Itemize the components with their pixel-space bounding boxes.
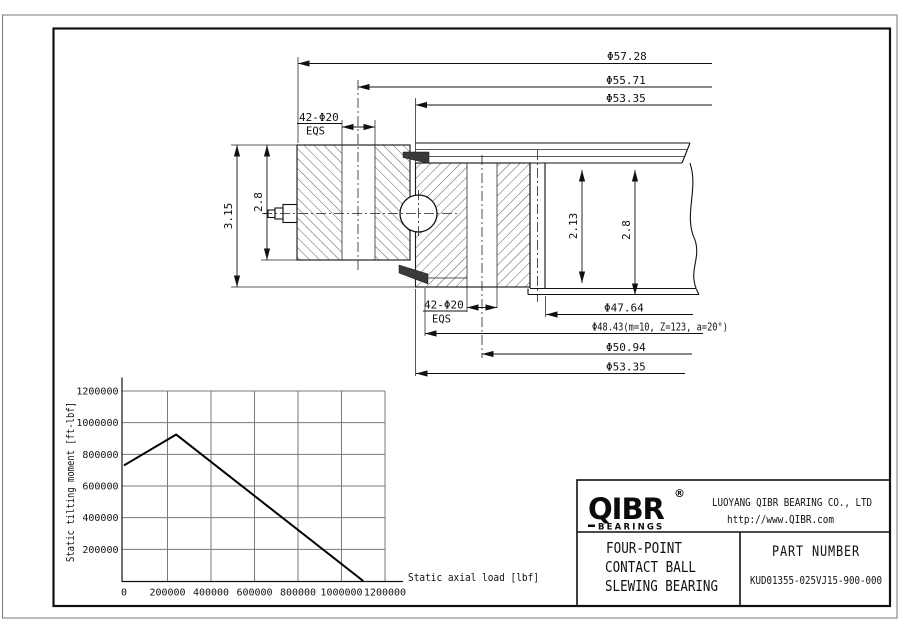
y-tick-label: 600000 [82,482,118,493]
dim-outer-ring-height: 2.8 [252,192,265,212]
engineering-drawing: Φ57.28 Φ55.71 Φ53.35 42-Φ20 EQS 3.15 2.8… [0,0,900,636]
dim-inner-ring-height: 2.8 [620,220,633,240]
dim-inner-bolt-circle: Φ50.94 [606,341,646,354]
y-axis-label: Static tilting moment [ft-lbf] [64,402,77,562]
registered-mark-icon: ® [674,487,685,500]
dim-inner-holes: 42-Φ20 [424,299,464,312]
chart-data-line [124,435,363,581]
company-website: http://www.QIBR.com [727,514,834,526]
x-tick-label: 1200000 [364,588,406,599]
product-type-line3: SLEWING BEARING [605,577,718,595]
x-tick-label: 0 [121,588,127,599]
dim-total-height: 3.15 [222,203,235,230]
y-tick-label: 200000 [82,545,118,556]
dim-outer-diameter: Φ57.28 [607,50,647,63]
x-axis-label: Static axial load [lbf] [408,571,539,584]
break-line-wavy [690,163,697,288]
chart-gridlines [122,391,385,582]
x-tick-label: 400000 [193,588,229,599]
dim-bore-diameter: Φ47.64 [604,302,644,315]
y-tick-label: 1000000 [76,418,118,429]
dim-outer-holes: 42-Φ20 [299,111,339,124]
product-type-line1: FOUR-POINT [606,539,682,557]
inner-ring-section [497,163,530,287]
dim-bottom-gap-diameter: Φ53.35 [606,361,646,374]
logo-rule [588,525,595,528]
x-tick-label: 200000 [149,588,185,599]
logo-subtext: BEARINGS [598,523,664,533]
part-number-value: KUD01355-025VJ15-900-000 [750,574,882,587]
load-chart: 2000004000006000008000001000000120000002… [64,378,539,599]
chart-tick-labels: 2000004000006000008000001000000120000002… [76,387,406,599]
dim-outer-bolt-circle: Φ55.71 [606,74,646,87]
y-tick-label: 1200000 [76,387,118,398]
x-tick-label: 600000 [236,588,272,599]
x-tick-label: 800000 [280,588,316,599]
x-tick-label: 1000000 [320,588,362,599]
part-number-label: PART NUMBER [772,544,860,560]
company-name: LUOYANG QIBR BEARING CO., LTD [712,497,872,509]
product-type-line2: CONTACT BALL [605,558,696,576]
logo-text: QIBR [588,492,665,526]
title-block: QIBR ® BEARINGS LUOYANG QIBR BEARING CO.… [577,480,890,606]
dim-outer-holes-note: EQS [306,126,325,138]
drawing-sheet: Φ57.28 Φ55.71 Φ53.35 42-Φ20 EQS 3.15 2.8… [0,0,900,636]
y-tick-label: 400000 [82,513,118,524]
company-logo: QIBR ® BEARINGS [588,487,685,533]
dim-gear-pitch: Φ48.43(m=10, Z=123, a=20°) [592,321,728,334]
outer-ring-section [297,145,342,260]
dim-pilot-height: 2.13 [567,213,580,240]
y-tick-label: 800000 [82,450,118,461]
dim-top-gap-diameter: Φ53.35 [606,92,646,105]
dim-inner-holes-note: EQS [432,314,451,326]
